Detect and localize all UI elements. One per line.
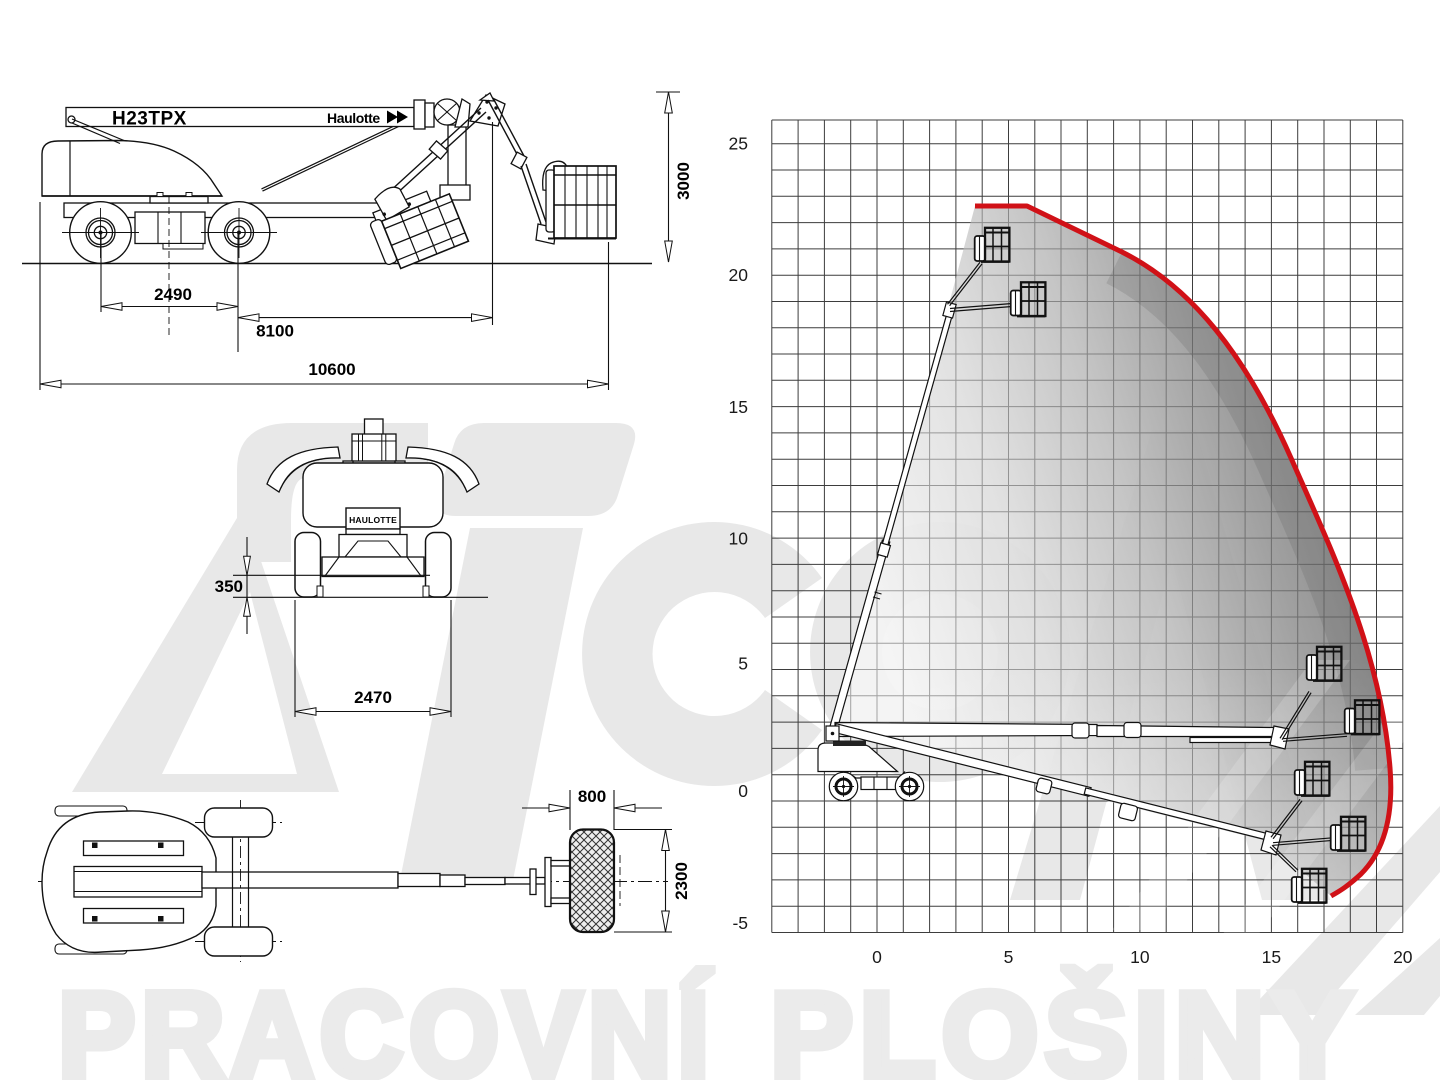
svg-text:Haulotte: Haulotte — [327, 110, 380, 126]
svg-text:800: 800 — [578, 787, 606, 806]
svg-text:25: 25 — [729, 134, 748, 154]
svg-text:2470: 2470 — [354, 688, 392, 707]
svg-text:350: 350 — [215, 577, 243, 596]
svg-text:15: 15 — [1262, 947, 1281, 967]
svg-text:PRACOVNÍ: PRACOVNÍ — [58, 967, 715, 1080]
svg-text:0: 0 — [872, 947, 882, 967]
svg-text:8100: 8100 — [256, 322, 294, 341]
svg-text:HAULOTTE: HAULOTTE — [349, 515, 397, 525]
svg-text:2490: 2490 — [154, 285, 192, 304]
svg-text:PLOŠINY: PLOŠINY — [770, 967, 1360, 1080]
svg-text:5: 5 — [1004, 947, 1014, 967]
svg-text:2300: 2300 — [672, 862, 691, 900]
svg-text:10: 10 — [1130, 947, 1150, 967]
svg-text:H23TPX: H23TPX — [112, 109, 187, 130]
svg-text:5: 5 — [738, 654, 748, 674]
svg-text:20: 20 — [729, 265, 749, 285]
svg-text:0: 0 — [738, 781, 748, 801]
svg-text:10: 10 — [729, 528, 749, 548]
svg-text:15: 15 — [729, 397, 748, 417]
svg-text:10600: 10600 — [308, 360, 355, 379]
svg-text:20: 20 — [1393, 947, 1413, 967]
svg-text:3000: 3000 — [674, 162, 693, 200]
svg-text:-5: -5 — [732, 913, 748, 933]
